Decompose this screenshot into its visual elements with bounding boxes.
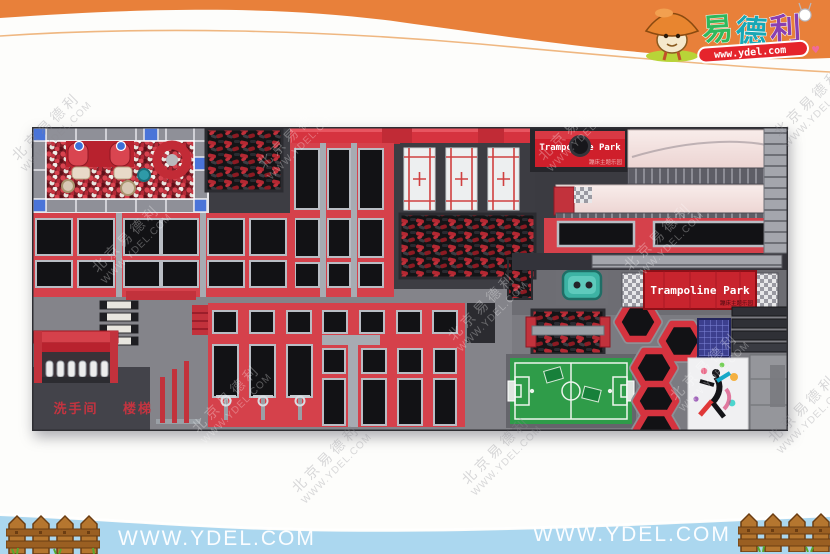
top-sign-subtitle: 蹦床主题乐园 — [589, 158, 623, 166]
soccer-field — [506, 354, 636, 428]
foam-pit-small — [206, 129, 282, 191]
fence-right — [738, 512, 830, 552]
banner-cap-left — [622, 273, 644, 307]
court-markings — [404, 148, 519, 210]
equipment-box — [467, 303, 495, 343]
top-red-band — [290, 127, 536, 144]
restroom-label: 洗手间 — [53, 401, 98, 416]
red-wall — [126, 291, 196, 300]
goal-left — [508, 381, 515, 401]
dunk-lanes — [213, 345, 312, 397]
long-trampoline-deck — [544, 218, 788, 253]
footer-url-left: WWW.YDEL.COM — [118, 527, 316, 551]
ladder-column — [764, 127, 788, 253]
top-sign: Trampoline Park 蹦床主题乐园 — [530, 127, 630, 172]
small-trampolines-row — [213, 311, 457, 333]
red-locker — [554, 187, 574, 215]
trampoline-deck-vertical — [290, 143, 394, 297]
brand-logo: 易 德 利 www.ydel.com ♥ — [636, 0, 822, 66]
heart-icon: ♥ — [812, 43, 821, 58]
catwalk-vertical — [348, 345, 358, 427]
battle-beam-pit — [526, 310, 610, 354]
checker-tile — [574, 187, 592, 203]
banner-subtitle: 蹦床主题乐园 — [720, 299, 754, 307]
logo-char-1: 易 — [701, 11, 734, 49]
foam-toy-2 — [62, 180, 74, 192]
purple-trampoline-mat — [698, 319, 730, 357]
spinner-toy — [138, 169, 150, 181]
fence-left — [6, 514, 100, 554]
catwalk-horizontal — [322, 335, 380, 345]
footer-url-right: WWW.YDEL.COM — [533, 523, 731, 547]
restroom-structure — [34, 331, 118, 383]
foam-toy — [121, 181, 135, 195]
banner-cap-right — [756, 273, 778, 307]
banner-title: Trampoline Park — [650, 284, 750, 297]
speaker-icon — [571, 137, 590, 156]
ball-pit-area — [32, 127, 208, 213]
art-wall — [688, 358, 748, 430]
dodgeball-courts — [400, 143, 535, 214]
rabbit-mascot — [799, 3, 811, 21]
stairs-label: 楼梯 — [123, 401, 153, 416]
trampoline-park-floorplan: 洗手间 楼梯 — [32, 127, 788, 431]
main-trampoline-deck — [208, 303, 495, 427]
right-platform — [750, 355, 788, 430]
tube-slide — [157, 145, 187, 175]
teal-air-device — [556, 265, 608, 305]
marketing-image: 洗手间 楼梯 — [0, 0, 830, 554]
banner-sign: Trampoline Park 蹦床主题乐园 — [622, 271, 778, 309]
trampoline-rows-left — [32, 213, 295, 297]
catwalk-segments — [592, 255, 782, 268]
